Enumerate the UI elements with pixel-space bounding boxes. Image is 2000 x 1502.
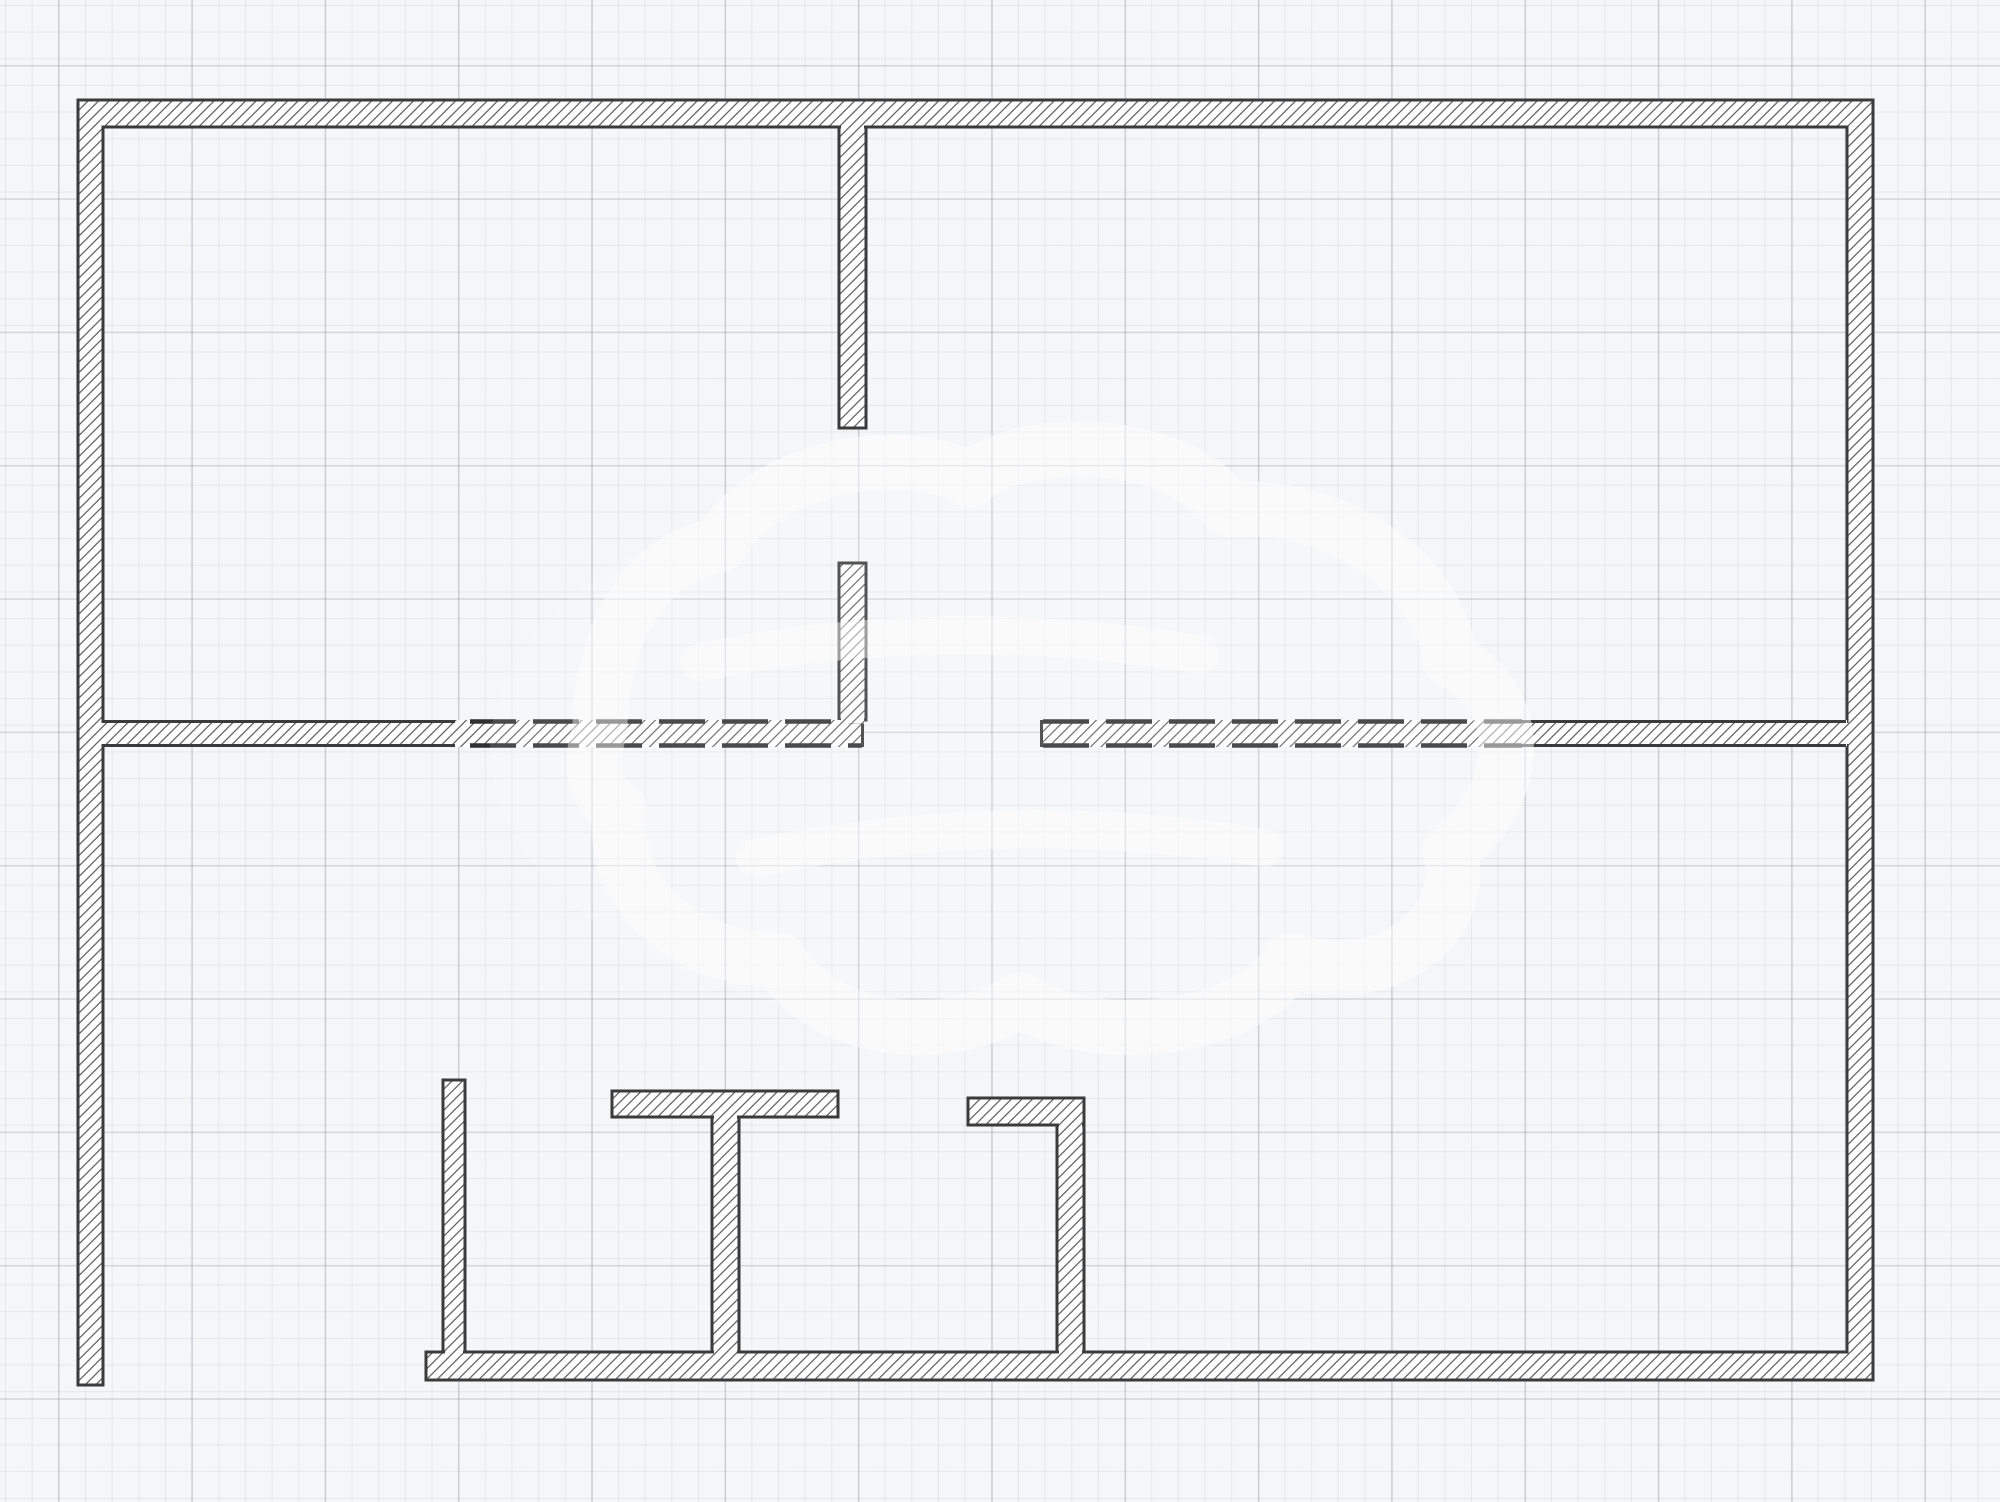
- junction-cornercap-stem: [1059, 1122, 1082, 1129]
- junction-tcap-tstem: [714, 1114, 737, 1121]
- closet-wall-left[interactable]: [443, 1080, 465, 1352]
- junction-tstem-bottomwall: [714, 1349, 737, 1356]
- cloud-watermark: [490, 449, 1506, 1030]
- junction-cornerstem-bottomwall: [1059, 1349, 1082, 1356]
- junction-closet-bottomwall: [445, 1349, 463, 1356]
- floorplan-svg: [0, 0, 2000, 1502]
- junction-middleright-rightwall: [1844, 723, 1850, 744]
- junction-middleleft-leftwall: [101, 723, 107, 744]
- drawing-canvas[interactable]: [0, 0, 2000, 1502]
- junction-partition-topwall: [841, 124, 864, 132]
- corner-wall-stem[interactable]: [1057, 1125, 1084, 1352]
- partition-upper[interactable]: [839, 127, 866, 428]
- corner-wall-cap[interactable]: [968, 1098, 1084, 1125]
- t-wall-stem[interactable]: [712, 1117, 739, 1352]
- t-wall-cap[interactable]: [612, 1091, 838, 1117]
